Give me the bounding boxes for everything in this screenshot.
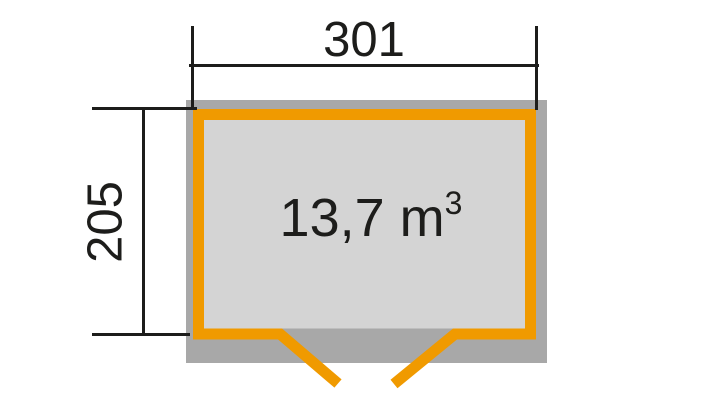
volume-label: 13,7 m3 [280, 185, 463, 248]
volume-value: 13,7 m [280, 188, 445, 248]
floor-plan-figure: 301 205 13,7 m3 [0, 0, 720, 405]
width-dimension-label: 301 [323, 13, 405, 67]
depth-dimension-label: 205 [79, 181, 133, 263]
floor-plan-canvas: 301 205 13,7 m3 [0, 0, 720, 405]
volume-superscript: 3 [445, 185, 463, 221]
